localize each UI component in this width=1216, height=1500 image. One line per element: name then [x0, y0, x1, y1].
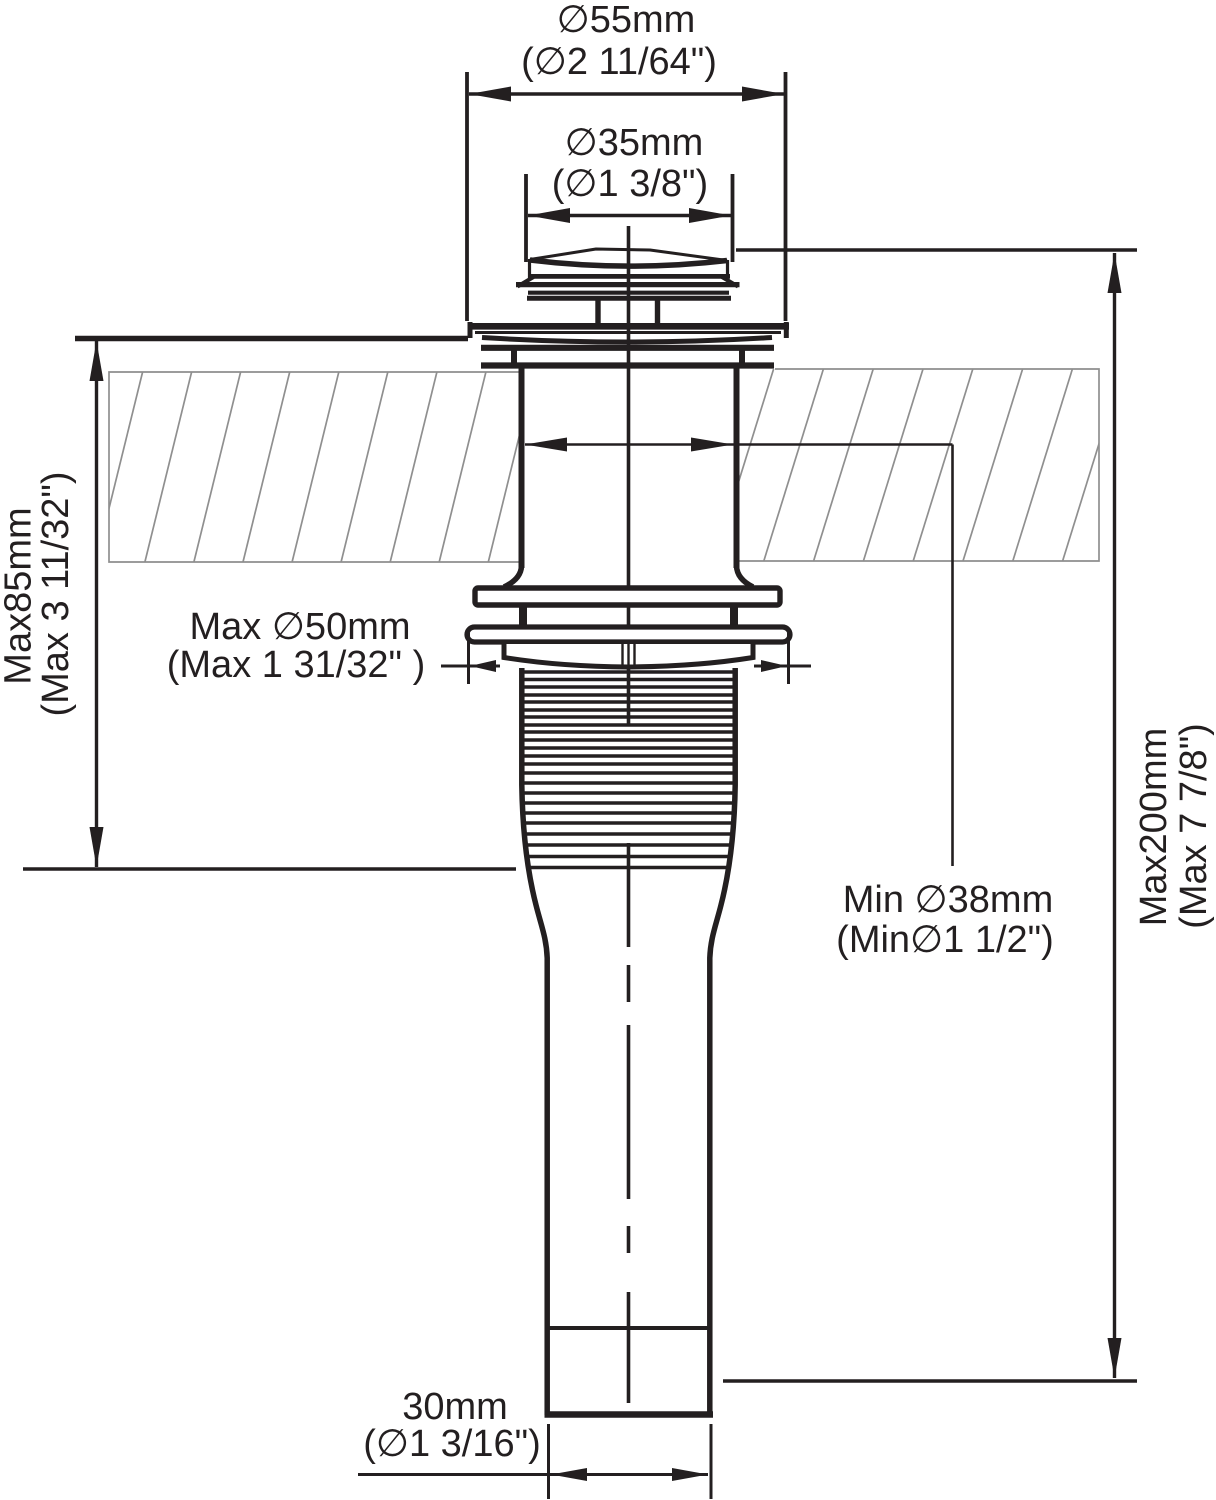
svg-text:(Max 1 31/32" ): (Max 1 31/32" ) [167, 644, 426, 686]
svg-text:(Max 3 11/32"): (Max 3 11/32") [35, 471, 77, 716]
svg-text:(∅1 3/16"): (∅1 3/16") [363, 1423, 541, 1465]
svg-text:(Min∅1 1/2"): (Min∅1 1/2") [836, 919, 1054, 961]
svg-text:(∅1 3/8"): (∅1 3/8") [552, 163, 708, 205]
svg-text:∅55mm: ∅55mm [557, 0, 696, 41]
svg-text:Max85mm: Max85mm [0, 507, 40, 684]
svg-text:∅35mm: ∅35mm [565, 122, 704, 164]
svg-text:Min ∅38mm: Min ∅38mm [843, 879, 1053, 921]
svg-text:Max200mm: Max200mm [1133, 728, 1175, 927]
svg-text:Max ∅50mm: Max ∅50mm [189, 606, 410, 648]
svg-text:(Max 7 7/8"): (Max 7 7/8") [1173, 723, 1215, 929]
svg-text:(∅2 11/64"): (∅2 11/64") [521, 41, 717, 83]
svg-text:30mm: 30mm [402, 1386, 508, 1428]
